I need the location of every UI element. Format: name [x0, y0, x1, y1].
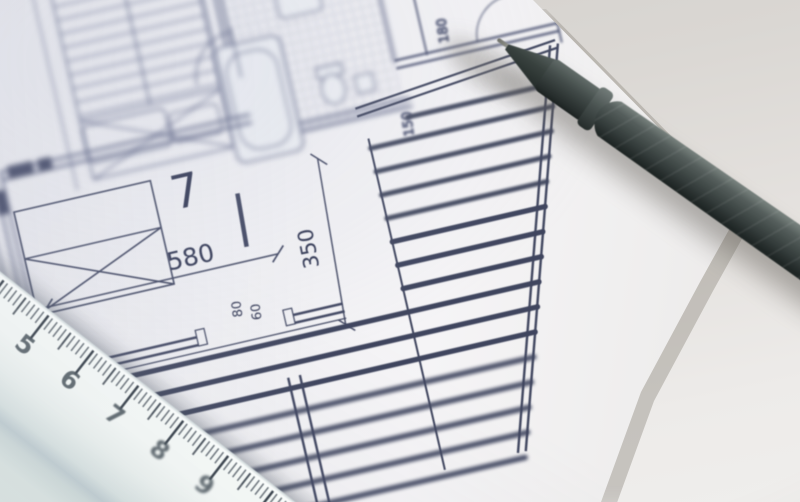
door-jamb	[195, 328, 207, 346]
dim-350-label: 350	[293, 227, 324, 271]
dimension-580: 580	[33, 222, 286, 315]
staircase-symbol	[27, 0, 236, 190]
door-jamb	[283, 308, 295, 326]
bathroom	[186, 0, 416, 164]
door-leaf	[234, 193, 249, 246]
bed-symbol	[14, 181, 174, 316]
dim-60-label: 60	[248, 303, 265, 321]
photo-floor-plan-scene: 180 150	[0, 0, 800, 502]
room-number-label: 7	[165, 161, 206, 220]
dim-580-label: 580	[164, 238, 217, 277]
bidet-symbol	[354, 72, 376, 94]
dim-80-label: 80	[229, 300, 246, 318]
